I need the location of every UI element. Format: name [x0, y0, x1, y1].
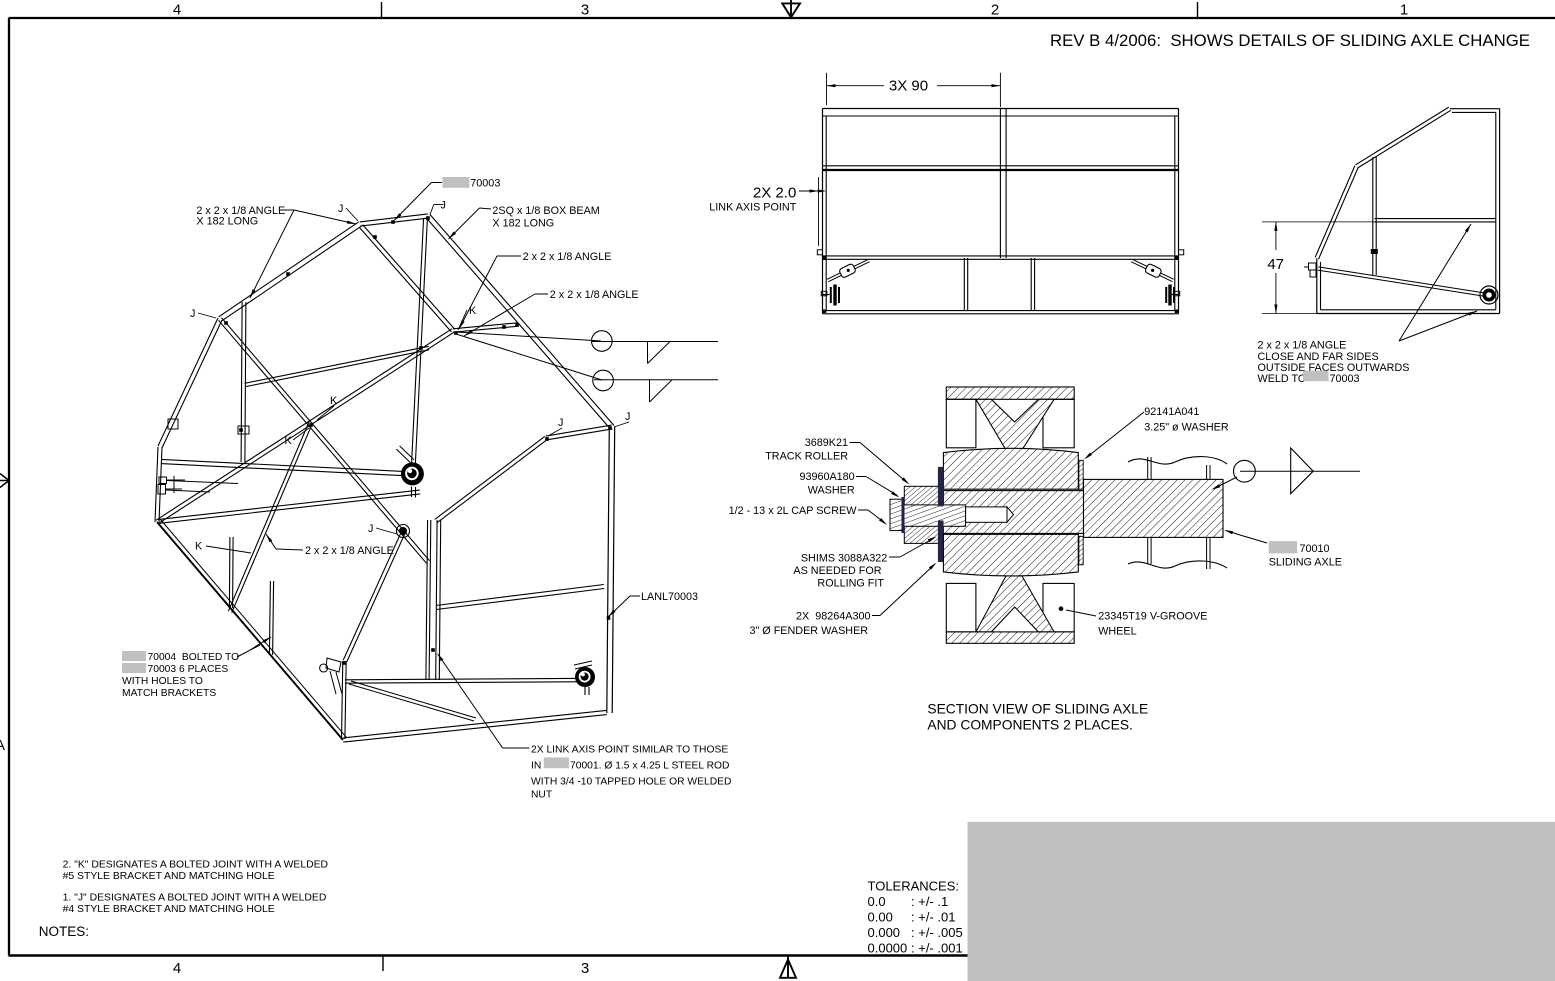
- svg-text:IN: IN: [531, 761, 541, 772]
- svg-text:: +/- .005: : +/- .005: [911, 925, 963, 940]
- svg-text:J: J: [441, 200, 446, 212]
- svg-text:3X 90: 3X 90: [889, 78, 928, 95]
- svg-text:92141A041: 92141A041: [1144, 406, 1199, 418]
- svg-text:AND COMPONENTS 2 PLACES.: AND COMPONENTS 2 PLACES.: [927, 717, 1132, 732]
- svg-text:3: 3: [581, 960, 589, 977]
- svg-text:TOLERANCES:: TOLERANCES:: [868, 879, 960, 894]
- svg-text:MATCH BRACKETS: MATCH BRACKETS: [122, 688, 216, 699]
- svg-text:2X 98264A300: 2X 98264A300: [796, 611, 870, 623]
- svg-text:LINK AXIS POINT: LINK AXIS POINT: [709, 202, 796, 214]
- svg-text:2 x 2 x 1/8 ANGLE: 2 x 2 x 1/8 ANGLE: [523, 251, 612, 263]
- svg-text:SECTION VIEW OF SLIDING AXLE: SECTION VIEW OF SLIDING AXLE: [927, 702, 1148, 717]
- svg-text:47: 47: [1267, 256, 1284, 273]
- svg-text:K: K: [330, 395, 338, 407]
- svg-text:K: K: [285, 435, 293, 447]
- svg-text:1/2 - 13 x 2L CAP SCREW: 1/2 - 13 x 2L CAP SCREW: [729, 505, 858, 517]
- svg-text:J: J: [368, 523, 373, 535]
- svg-text:2 x 2 x 1/8 ANGLE: 2 x 2 x 1/8 ANGLE: [1258, 340, 1347, 352]
- svg-text:ROLLING FIT: ROLLING FIT: [817, 578, 884, 590]
- svg-text:AS NEEDED FOR: AS NEEDED FOR: [793, 565, 881, 577]
- svg-text:WHEEL: WHEEL: [1098, 626, 1136, 638]
- svg-text:1: 1: [1400, 2, 1408, 19]
- svg-text:WITH 3/4 -10 TAPPED HOLE OR WE: WITH 3/4 -10 TAPPED HOLE OR WELDED: [531, 777, 731, 788]
- svg-text:SLIDING AXLE: SLIDING AXLE: [1269, 557, 1342, 569]
- svg-text:#5 STYLE BRACKET AND MATCHING: #5 STYLE BRACKET AND MATCHING HOLE: [63, 871, 275, 882]
- svg-text:2 x 2 x 1/8 ANGLE: 2 x 2 x 1/8 ANGLE: [305, 545, 394, 557]
- svg-text:WELD TO: WELD TO: [1258, 373, 1307, 385]
- svg-text:#4 STYLE BRACKET AND MATCHING: #4 STYLE BRACKET AND MATCHING HOLE: [63, 904, 275, 915]
- svg-text:3.25" ø WASHER: 3.25" ø WASHER: [1144, 422, 1229, 434]
- svg-text:: +/- .01: : +/- .01: [911, 909, 955, 924]
- svg-text:2. "K" DESIGNATES A BOLTED JOI: 2. "K" DESIGNATES A BOLTED JOINT WITH A …: [63, 859, 328, 870]
- svg-text:K: K: [195, 541, 203, 553]
- svg-text:2: 2: [991, 2, 999, 19]
- svg-text:70001. Ø 1.5 x 4.25 L STEEL RO: 70001. Ø 1.5 x 4.25 L STEEL ROD: [570, 761, 730, 772]
- svg-text:3: 3: [581, 2, 589, 19]
- svg-text:REV B 4/2006: SHOWS DETAILS O: REV B 4/2006: SHOWS DETAILS OF SLIDING A…: [1050, 31, 1530, 50]
- svg-text:70003 6 PLACES: 70003 6 PLACES: [148, 664, 229, 675]
- svg-text:K: K: [469, 305, 477, 317]
- svg-text:NOTES:: NOTES:: [39, 924, 89, 939]
- svg-text:WITH HOLES TO: WITH HOLES TO: [122, 676, 203, 687]
- svg-text:2 x 2 x 1/8 ANGLE: 2 x 2 x 1/8 ANGLE: [550, 289, 639, 301]
- svg-text:2SQ x 1/8 BOX BEAM: 2SQ x 1/8 BOX BEAM: [492, 205, 599, 217]
- svg-text:SHIMS 3088A322: SHIMS 3088A322: [801, 553, 887, 565]
- svg-text:X 182 LONG: X 182 LONG: [196, 216, 258, 228]
- svg-text:3" Ø FENDER WASHER: 3" Ø FENDER WASHER: [749, 625, 868, 637]
- svg-text:TRACK ROLLER: TRACK ROLLER: [765, 451, 848, 463]
- svg-text:93960A180: 93960A180: [799, 471, 854, 483]
- svg-text:J: J: [558, 417, 563, 429]
- svg-text:2X 2.0: 2X 2.0: [753, 185, 796, 202]
- svg-text:0.00: 0.00: [868, 909, 893, 924]
- svg-text:4: 4: [173, 960, 181, 977]
- svg-text:J: J: [190, 308, 195, 320]
- svg-text:0.0: 0.0: [868, 894, 886, 909]
- svg-text:WASHER: WASHER: [808, 485, 855, 497]
- svg-text:NUT: NUT: [531, 790, 553, 801]
- svg-text:0.000: 0.000: [868, 925, 901, 940]
- svg-text:4: 4: [173, 2, 181, 19]
- svg-text:70003: 70003: [470, 177, 500, 189]
- svg-text:X 182 LONG: X 182 LONG: [492, 218, 554, 230]
- svg-text:A: A: [0, 737, 5, 754]
- svg-text:3689K21: 3689K21: [805, 437, 848, 449]
- svg-text:70010: 70010: [1300, 543, 1330, 555]
- svg-text:0.0000: 0.0000: [868, 940, 908, 955]
- svg-text:2X LINK AXIS POINT SIMILAR TO: 2X LINK AXIS POINT SIMILAR TO THOSE: [531, 745, 728, 756]
- svg-text:: +/- .1: : +/- .1: [911, 894, 948, 909]
- svg-text:23345T19 V-GROOVE: 23345T19 V-GROOVE: [1098, 611, 1207, 623]
- svg-text:70004 BOLTED TO: 70004 BOLTED TO: [148, 652, 240, 663]
- svg-text:70003: 70003: [1330, 373, 1360, 385]
- svg-text:1. "J" DESIGNATES A BOLTED JOI: 1. "J" DESIGNATES A BOLTED JOINT WITH A …: [63, 892, 327, 903]
- svg-text:J: J: [338, 203, 343, 215]
- svg-text:LANL70003: LANL70003: [641, 591, 698, 603]
- svg-text:: +/- .001: : +/- .001: [911, 940, 963, 955]
- svg-text:J: J: [625, 411, 630, 423]
